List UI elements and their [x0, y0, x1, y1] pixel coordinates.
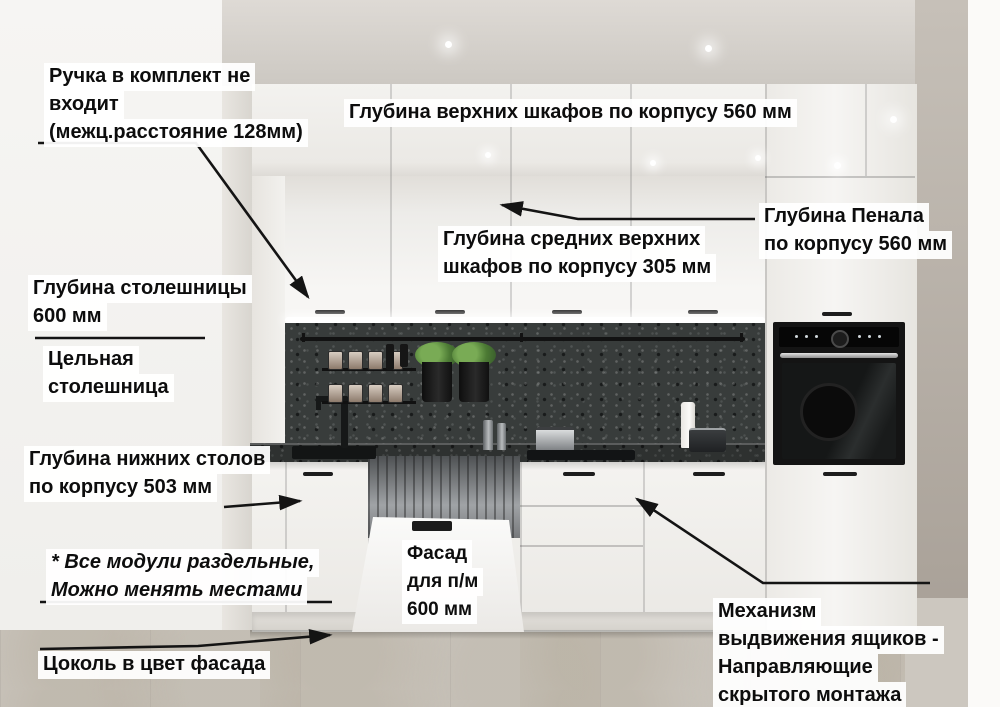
label-line: Цоколь в цвет фасада: [38, 651, 270, 679]
spice-jar: [348, 351, 363, 370]
grinder: [483, 420, 493, 450]
cabinet-door-seam: [390, 176, 392, 318]
oven-display-dot: [878, 335, 881, 338]
oven-display-dot: [815, 335, 818, 338]
cabinet-door-seam: [765, 176, 915, 178]
label-line: входит: [44, 91, 124, 119]
rail-mount: [520, 333, 523, 342]
label-mid-upper-depth: Глубина средних верхних шкафов по корпус…: [438, 226, 716, 282]
label-line: Фасад: [402, 540, 472, 568]
label-line: Глубина верхних шкафов по корпусу 560 мм: [344, 99, 797, 127]
grinder: [497, 423, 506, 450]
label-line: Глубина столешницы: [28, 275, 252, 303]
drawer-handle: [563, 472, 595, 476]
small-appliance: [689, 428, 726, 452]
spice-jar: [328, 351, 343, 370]
label-dishwasher-facade: Фасад для п/м 600 мм: [402, 540, 483, 624]
oven-display-dot: [805, 335, 808, 338]
oven-display-dot: [795, 335, 798, 338]
faucet-drop: [316, 396, 321, 410]
label-handle-note: Ручка в комплект не входит (межц.расстоя…: [44, 63, 308, 147]
label-line: Направляющие: [713, 654, 878, 682]
cabinet-door-seam: [520, 462, 522, 612]
label-line: для п/м: [402, 568, 483, 596]
hanging-utensil: [386, 344, 394, 370]
label-line: Глубина нижних столов: [24, 446, 270, 474]
spice-jar: [328, 384, 343, 403]
cabinet-handle: [693, 472, 725, 476]
ceiling-spotlight: [705, 45, 712, 52]
ceiling-spotlight: [890, 116, 897, 123]
cabinet-door-seam: [510, 84, 512, 176]
cabinet-handle: [315, 310, 345, 314]
right-wall: [915, 0, 968, 615]
label-line: Ручка в комплект не: [44, 63, 255, 91]
label-line: скрытого монтажа: [713, 682, 906, 707]
cabinet-handle: [435, 310, 465, 314]
gloss-reflection: [485, 152, 491, 158]
label-plinth-note: Цоколь в цвет фасада: [38, 651, 270, 679]
label-base-cabinet-depth: Глубина нижних столов по корпусу 503 мм: [24, 446, 270, 502]
gloss-reflection: [755, 155, 761, 161]
cabinet-door-seam: [865, 84, 867, 176]
gloss-reflection: [834, 162, 841, 169]
drawer-seam: [520, 505, 643, 507]
label-solid-countertop: Цельная столешница: [43, 346, 174, 402]
label-line: столешница: [43, 374, 174, 402]
label-line: Цельная: [43, 346, 139, 374]
cabinet-door-seam: [390, 84, 392, 176]
spice-jar: [348, 384, 363, 403]
spice-jar: [388, 384, 403, 403]
dishwasher-handle: [412, 521, 452, 531]
cabinet-door-seam: [643, 462, 645, 612]
window-light-strip: [968, 0, 1000, 707]
oven-knob: [831, 330, 849, 348]
herb-planter: [459, 362, 489, 402]
label-upper-cabinet-depth: Глубина верхних шкафов по корпусу 560 мм: [344, 99, 797, 127]
hanging-utensil: [400, 344, 408, 367]
rail-mount: [302, 333, 305, 342]
label-countertop-depth: Глубина столешницы 600 мм: [28, 275, 252, 331]
gloss-reflection: [650, 160, 656, 166]
cabinet-handle: [552, 310, 582, 314]
label-line: 600 мм: [28, 303, 107, 331]
label-line: Глубина средних верхних: [438, 226, 705, 254]
oven-fan-circle: [800, 383, 858, 441]
drawer-seam: [520, 545, 643, 547]
label-line: * Все модули раздельные,: [46, 549, 319, 577]
label-line: Механизм: [713, 598, 821, 626]
spice-jar: [368, 384, 383, 403]
label-line: Можно менять местами: [46, 577, 307, 605]
cabinet-handle: [822, 312, 852, 316]
oven-display-dot: [858, 335, 861, 338]
rail-mount: [740, 333, 743, 342]
label-line: выдвижения ящиков -: [713, 626, 944, 654]
oven-handle: [780, 353, 898, 358]
cabinet-handle: [823, 472, 857, 476]
label-modules-note: * Все модули раздельные, Можно менять ме…: [46, 549, 319, 605]
cooktop: [527, 450, 635, 460]
herb-planter: [422, 362, 452, 402]
label-line: шкафов по корпусу 305 мм: [438, 254, 716, 282]
label-line: (межц.расстояние 128мм): [44, 119, 308, 147]
cabinet-handle: [688, 310, 718, 314]
label-line: Глубина Пенала: [759, 203, 929, 231]
spice-jar: [368, 351, 383, 370]
oven-display-dot: [868, 335, 871, 338]
cabinet-handle: [303, 472, 333, 476]
label-line: по корпусу 503 мм: [24, 474, 217, 502]
label-line: по корпусу 560 мм: [759, 231, 952, 259]
ceiling-spotlight: [445, 41, 452, 48]
label-tall-cabinet-depth: Глубина Пенала по корпусу 560 мм: [759, 203, 952, 259]
annotated-kitchen-diagram: Ручка в комплект не входит (межц.расстоя…: [0, 0, 1000, 707]
sink: [292, 446, 376, 459]
ceiling: [222, 0, 968, 86]
label-drawer-mechanism: Механизм выдвижения ящиков - Направляющи…: [713, 598, 944, 707]
label-line: 600 мм: [402, 596, 477, 624]
cabinet-door-seam: [630, 84, 632, 176]
